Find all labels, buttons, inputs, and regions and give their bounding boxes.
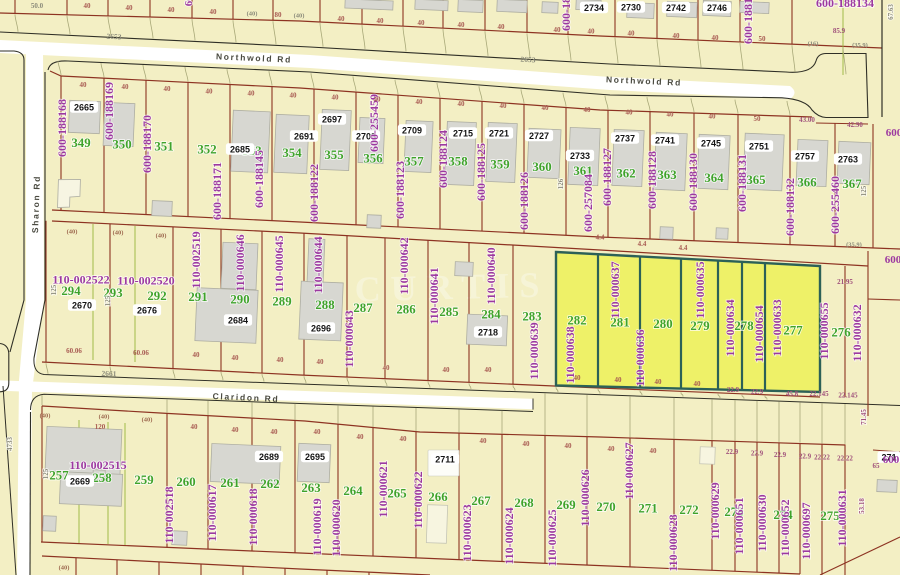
svg-text:21.95: 21.95 xyxy=(837,278,853,286)
svg-text:351: 351 xyxy=(154,140,173,154)
svg-text:40: 40 xyxy=(206,87,214,95)
svg-text:352: 352 xyxy=(197,143,216,157)
svg-text:40: 40 xyxy=(248,89,256,97)
svg-text:2715: 2715 xyxy=(453,128,473,138)
svg-text:45.8: 45.8 xyxy=(786,390,799,398)
svg-text:110-000617: 110-000617 xyxy=(205,484,219,541)
svg-text:264: 264 xyxy=(343,484,363,498)
svg-text:2737: 2737 xyxy=(615,133,635,143)
svg-text:110-000619: 110-000619 xyxy=(310,498,324,555)
svg-text:4733: 4733 xyxy=(6,437,14,452)
svg-text:110-000654: 110-000654 xyxy=(752,305,766,362)
svg-text:286: 286 xyxy=(396,303,416,317)
svg-text:2665: 2665 xyxy=(74,102,94,112)
svg-text:600: 600 xyxy=(183,0,195,6)
svg-text:120: 120 xyxy=(95,423,106,431)
svg-text:291: 291 xyxy=(188,290,207,304)
svg-text:2653: 2653 xyxy=(106,32,122,42)
svg-text:110-000621: 110-000621 xyxy=(376,460,390,517)
svg-text:600-188132: 600-188132 xyxy=(783,178,797,236)
svg-text:110-000625: 110-000625 xyxy=(545,509,559,566)
svg-text:40: 40 xyxy=(694,380,702,388)
svg-text:600-188130: 600-188130 xyxy=(686,153,700,211)
svg-text:22.145: 22.145 xyxy=(809,390,829,398)
svg-text:110-002518: 110-002518 xyxy=(162,486,176,543)
svg-text:40: 40 xyxy=(314,428,322,436)
svg-text:2711: 2711 xyxy=(435,454,455,464)
svg-text:600-188171: 600-188171 xyxy=(210,162,224,220)
svg-text:4.4: 4.4 xyxy=(679,244,688,252)
svg-text:126: 126 xyxy=(557,178,565,189)
svg-text:40: 40 xyxy=(377,17,385,25)
svg-text:(35.9): (35.9) xyxy=(846,242,862,249)
svg-text:2730: 2730 xyxy=(621,2,641,12)
svg-text:2718: 2718 xyxy=(478,327,498,337)
svg-text:356: 356 xyxy=(363,152,383,166)
svg-text:110-000642: 110-000642 xyxy=(397,237,411,294)
svg-text:40: 40 xyxy=(615,376,623,384)
svg-text:260: 260 xyxy=(176,475,195,489)
svg-text:CURTIS: CURTIS xyxy=(354,264,550,309)
svg-text:40: 40 xyxy=(122,83,130,91)
svg-text:258: 258 xyxy=(92,471,111,485)
svg-text:2721: 2721 xyxy=(489,128,509,138)
svg-text:600-188170: 600-188170 xyxy=(140,115,154,173)
svg-text:40: 40 xyxy=(191,423,199,431)
svg-text:600-188123: 600-188123 xyxy=(393,161,407,219)
svg-text:40: 40 xyxy=(523,440,531,448)
svg-text:4.4: 4.4 xyxy=(596,234,605,242)
svg-text:278: 278 xyxy=(734,319,753,333)
svg-text:261: 261 xyxy=(220,476,239,490)
svg-text:22.22: 22.22 xyxy=(814,454,830,462)
svg-text:40: 40 xyxy=(383,364,391,372)
svg-text:262: 262 xyxy=(260,477,279,491)
svg-text:600-188134: 600-188134 xyxy=(816,0,874,10)
svg-text:288: 288 xyxy=(315,298,334,312)
svg-text:110-000645: 110-000645 xyxy=(272,235,286,292)
svg-text:285: 285 xyxy=(439,305,458,319)
svg-text:600-188124: 600-188124 xyxy=(436,130,450,188)
svg-text:2676: 2676 xyxy=(137,305,157,315)
svg-text:40: 40 xyxy=(418,19,426,27)
svg-text:289: 289 xyxy=(272,295,291,309)
svg-text:40: 40 xyxy=(565,442,573,450)
svg-text:60.06: 60.06 xyxy=(66,347,82,355)
svg-text:600-255460: 600-255460 xyxy=(828,176,842,234)
svg-text:110-002519: 110-002519 xyxy=(189,231,203,288)
svg-text:358: 358 xyxy=(448,155,467,169)
svg-text:40: 40 xyxy=(655,378,663,386)
svg-text:40: 40 xyxy=(80,81,88,89)
svg-text:40: 40 xyxy=(574,374,582,382)
svg-text:2734: 2734 xyxy=(584,3,604,13)
svg-text:110-000631: 110-000631 xyxy=(835,489,849,546)
svg-text:60.06: 60.06 xyxy=(133,349,149,357)
svg-text:40: 40 xyxy=(126,4,134,12)
svg-text:110-000627: 110-000627 xyxy=(622,442,636,499)
svg-text:40: 40 xyxy=(277,356,285,364)
svg-text:2751: 2751 xyxy=(749,141,769,151)
svg-text:110-000628: 110-000628 xyxy=(666,514,680,571)
svg-text:110-000623: 110-000623 xyxy=(460,504,474,561)
svg-text:600-188125: 600-188125 xyxy=(474,143,488,201)
svg-text:2691: 2691 xyxy=(294,131,314,141)
svg-text:110-002522: 110-002522 xyxy=(52,273,109,287)
svg-text:2697: 2697 xyxy=(322,114,342,124)
svg-text:110-000633: 110-000633 xyxy=(770,299,784,356)
svg-text:40: 40 xyxy=(193,351,201,359)
svg-text:600-188169: 600-188169 xyxy=(102,82,116,140)
svg-text:110-000630: 110-000630 xyxy=(755,494,769,551)
svg-text:110-000641: 110-000641 xyxy=(427,267,441,324)
svg-text:2695: 2695 xyxy=(305,452,325,462)
svg-text:2684: 2684 xyxy=(228,315,248,325)
svg-text:271: 271 xyxy=(638,502,657,516)
svg-text:110-000636: 110-000636 xyxy=(633,329,647,386)
svg-text:280: 280 xyxy=(653,317,672,331)
svg-text:267: 267 xyxy=(471,494,491,508)
svg-text:40: 40 xyxy=(168,6,176,14)
svg-text:110-000635: 110-000635 xyxy=(693,261,707,318)
svg-text:2696: 2696 xyxy=(311,323,331,333)
svg-text:40: 40 xyxy=(338,15,346,23)
svg-text:600-188122: 600-188122 xyxy=(307,164,321,222)
svg-text:40: 40 xyxy=(498,23,506,31)
svg-text:357: 357 xyxy=(404,155,424,169)
svg-text:22.145: 22.145 xyxy=(838,392,858,400)
svg-text:600: 600 xyxy=(883,454,900,466)
svg-text:22.9: 22.9 xyxy=(751,450,764,458)
svg-text:(35.9): (35.9) xyxy=(852,42,868,49)
svg-text:40: 40 xyxy=(232,426,240,434)
svg-text:(40): (40) xyxy=(67,229,78,236)
svg-text:600-188131: 600-188131 xyxy=(735,154,749,212)
svg-text:110-002515: 110-002515 xyxy=(69,458,126,472)
svg-text:50: 50 xyxy=(759,35,767,43)
svg-text:2669: 2669 xyxy=(70,476,90,486)
svg-text:40: 40 xyxy=(584,106,592,114)
svg-text:40: 40 xyxy=(271,428,279,436)
svg-text:290: 290 xyxy=(230,293,249,307)
svg-text:40: 40 xyxy=(290,92,298,100)
svg-text:50.0: 50.0 xyxy=(31,2,44,10)
svg-text:600-188129: 600-188129 xyxy=(741,0,755,44)
svg-text:110-000651: 110-000651 xyxy=(732,497,746,554)
svg-text:40: 40 xyxy=(554,26,562,34)
svg-text:(16): (16) xyxy=(808,41,819,48)
svg-text:110-000697: 110-000697 xyxy=(799,502,813,559)
svg-text:600-188127: 600-188127 xyxy=(600,148,614,206)
svg-text:40: 40 xyxy=(210,8,218,16)
svg-text:(40): (40) xyxy=(113,230,124,237)
svg-text:360: 360 xyxy=(532,160,551,174)
svg-text:67.63: 67.63 xyxy=(887,4,895,20)
svg-text:40: 40 xyxy=(667,110,675,118)
svg-text:276: 276 xyxy=(831,326,851,340)
svg-text:4.4: 4.4 xyxy=(638,240,647,248)
svg-text:40: 40 xyxy=(332,94,340,102)
svg-text:362: 362 xyxy=(616,167,635,181)
svg-text:600-188168: 600-188168 xyxy=(55,99,69,157)
svg-text:2685: 2685 xyxy=(230,144,250,154)
svg-text:600: 600 xyxy=(886,127,900,139)
svg-text:2742: 2742 xyxy=(666,3,686,13)
svg-text:22.9: 22.9 xyxy=(726,448,739,456)
svg-text:110-000644: 110-000644 xyxy=(311,236,325,293)
svg-text:71.45: 71.45 xyxy=(860,409,868,425)
svg-text:53.18: 53.18 xyxy=(858,498,866,514)
svg-text:110-000629: 110-000629 xyxy=(708,482,722,539)
svg-text:2745: 2745 xyxy=(701,138,721,148)
svg-text:268: 268 xyxy=(514,496,533,510)
svg-text:125: 125 xyxy=(42,468,50,479)
svg-text:50: 50 xyxy=(754,115,762,123)
svg-text:2653: 2653 xyxy=(520,55,536,65)
svg-text:(40): (40) xyxy=(156,233,167,240)
svg-text:40: 40 xyxy=(317,358,325,366)
svg-text:22.9: 22.9 xyxy=(774,451,787,459)
svg-text:355: 355 xyxy=(324,148,343,162)
svg-text:40: 40 xyxy=(416,98,424,106)
svg-text:283: 283 xyxy=(522,310,541,324)
svg-text:292: 292 xyxy=(147,289,166,303)
svg-text:40: 40 xyxy=(458,21,466,29)
svg-text:(40): (40) xyxy=(99,414,110,421)
svg-text:40: 40 xyxy=(232,354,240,362)
svg-text:40: 40 xyxy=(709,113,717,121)
svg-text:110-000618: 110-000618 xyxy=(246,488,260,545)
svg-text:40: 40 xyxy=(374,96,382,104)
svg-text:22.9: 22.9 xyxy=(751,388,764,396)
svg-text:40: 40 xyxy=(542,104,550,112)
svg-text:125: 125 xyxy=(50,284,58,295)
svg-text:2661: 2661 xyxy=(101,369,117,379)
svg-text:359: 359 xyxy=(490,158,509,172)
svg-text:364: 364 xyxy=(704,171,724,185)
svg-text:2746: 2746 xyxy=(707,3,727,13)
svg-text:110-000655: 110-000655 xyxy=(817,302,831,359)
svg-text:600: 600 xyxy=(885,254,900,266)
svg-text:600-188145: 600-188145 xyxy=(252,150,266,208)
svg-text:600-257084: 600-257084 xyxy=(581,174,595,232)
svg-text:2689: 2689 xyxy=(259,452,279,462)
svg-text:600-188120: 600-188120 xyxy=(559,0,573,31)
svg-text:2763: 2763 xyxy=(838,154,858,164)
svg-text:110-002520: 110-002520 xyxy=(117,274,174,288)
svg-text:40: 40 xyxy=(673,32,681,40)
svg-text:40: 40 xyxy=(608,445,616,453)
svg-text:270: 270 xyxy=(596,500,615,514)
svg-text:22.9: 22.9 xyxy=(727,386,740,394)
svg-text:265: 265 xyxy=(387,487,406,501)
svg-text:2741: 2741 xyxy=(655,135,675,145)
svg-text:42.90: 42.90 xyxy=(847,121,863,129)
svg-text:110-000639: 110-000639 xyxy=(527,322,541,379)
svg-text:2670: 2670 xyxy=(72,300,92,310)
svg-text:354: 354 xyxy=(282,146,302,160)
svg-text:600-188126: 600-188126 xyxy=(517,172,531,230)
svg-text:(40): (40) xyxy=(294,13,305,20)
svg-text:65: 65 xyxy=(873,462,881,470)
svg-text:110-000620: 110-000620 xyxy=(329,499,343,556)
svg-text:40: 40 xyxy=(357,433,365,441)
svg-text:365: 365 xyxy=(746,173,765,187)
svg-text:110-000652: 110-000652 xyxy=(778,499,792,556)
svg-text:349: 349 xyxy=(71,136,90,150)
svg-text:269: 269 xyxy=(556,498,575,512)
svg-text:40: 40 xyxy=(712,34,720,42)
svg-text:40: 40 xyxy=(628,30,636,38)
svg-text:40: 40 xyxy=(650,447,658,455)
svg-text:85.9: 85.9 xyxy=(833,27,846,35)
svg-text:40: 40 xyxy=(458,100,466,108)
svg-text:22.9: 22.9 xyxy=(799,453,812,461)
svg-text:110-000637: 110-000637 xyxy=(608,261,622,318)
svg-text:80: 80 xyxy=(275,11,283,19)
svg-text:263: 263 xyxy=(301,481,320,495)
svg-text:110-000634: 110-000634 xyxy=(723,299,737,356)
svg-text:110-000646: 110-000646 xyxy=(233,234,247,291)
svg-text:(40): (40) xyxy=(59,565,70,572)
svg-text:40: 40 xyxy=(400,435,408,443)
svg-text:366: 366 xyxy=(797,176,817,190)
svg-text:266: 266 xyxy=(428,490,448,504)
svg-text:363: 363 xyxy=(657,168,676,182)
svg-text:259: 259 xyxy=(134,473,153,487)
svg-text:22.22: 22.22 xyxy=(837,455,853,463)
svg-text:43.00: 43.00 xyxy=(799,116,815,124)
svg-text:110-000643: 110-000643 xyxy=(342,310,356,367)
svg-text:40: 40 xyxy=(84,2,92,10)
svg-text:(40): (40) xyxy=(40,413,51,420)
svg-text:2727: 2727 xyxy=(529,131,549,141)
svg-text:40: 40 xyxy=(164,85,172,93)
svg-text:282: 282 xyxy=(567,314,586,328)
svg-text:Sharon Rd: Sharon Rd xyxy=(30,175,42,234)
svg-text:2709: 2709 xyxy=(402,125,422,135)
svg-text:600-188128: 600-188128 xyxy=(645,151,659,209)
svg-text:(40): (40) xyxy=(142,417,153,424)
svg-text:284: 284 xyxy=(481,308,501,322)
svg-text:125: 125 xyxy=(860,185,868,196)
svg-text:40: 40 xyxy=(480,437,488,445)
svg-text:125: 125 xyxy=(104,295,112,306)
svg-text:2757: 2757 xyxy=(795,151,815,161)
svg-text:272: 272 xyxy=(679,503,698,517)
svg-text:287: 287 xyxy=(353,301,373,315)
svg-text:279: 279 xyxy=(690,319,709,333)
svg-text:(40): (40) xyxy=(247,11,258,18)
svg-text:40: 40 xyxy=(443,366,451,374)
svg-text:277: 277 xyxy=(783,324,803,338)
svg-text:110-000624: 110-000624 xyxy=(502,507,516,564)
svg-text:110-000632: 110-000632 xyxy=(850,304,864,361)
svg-text:40: 40 xyxy=(500,102,508,110)
svg-text:2733: 2733 xyxy=(570,151,590,161)
svg-text:40: 40 xyxy=(485,366,493,374)
svg-text:40: 40 xyxy=(588,28,596,36)
svg-text:110-000626: 110-000626 xyxy=(578,469,592,526)
svg-text:110-000640: 110-000640 xyxy=(484,247,498,304)
svg-text:40: 40 xyxy=(626,108,634,116)
svg-text:110-000622: 110-000622 xyxy=(411,471,425,528)
